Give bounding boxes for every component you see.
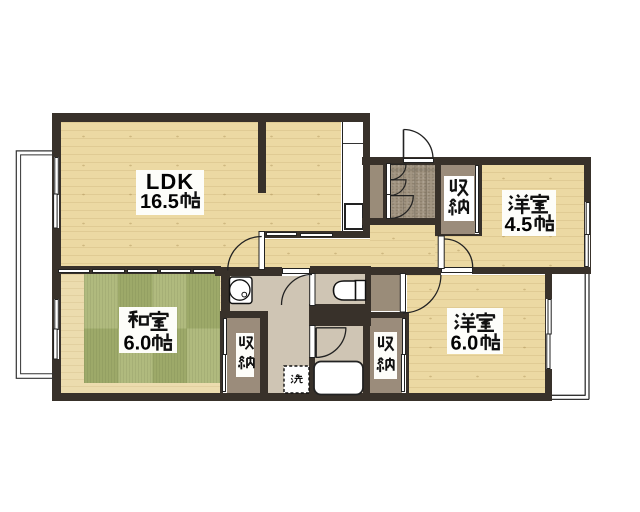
svg-text:6.0: 6.0 xyxy=(450,333,478,355)
svg-text:4.5: 4.5 xyxy=(504,214,532,236)
svg-text:16.5: 16.5 xyxy=(140,191,179,213)
svg-text:6.0: 6.0 xyxy=(123,333,151,355)
